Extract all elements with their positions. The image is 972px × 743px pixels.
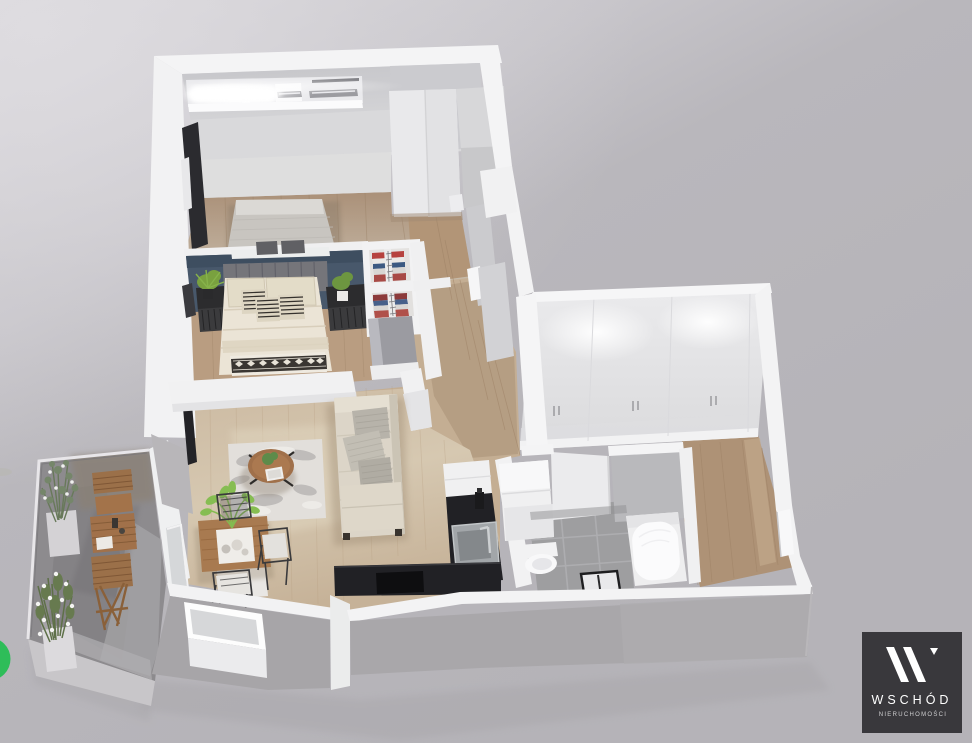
svg-text:NIERUCHOMOŚCI: NIERUCHOMOŚCI [879,710,948,718]
svg-text:WSCHÓD: WSCHÓD [872,692,953,707]
